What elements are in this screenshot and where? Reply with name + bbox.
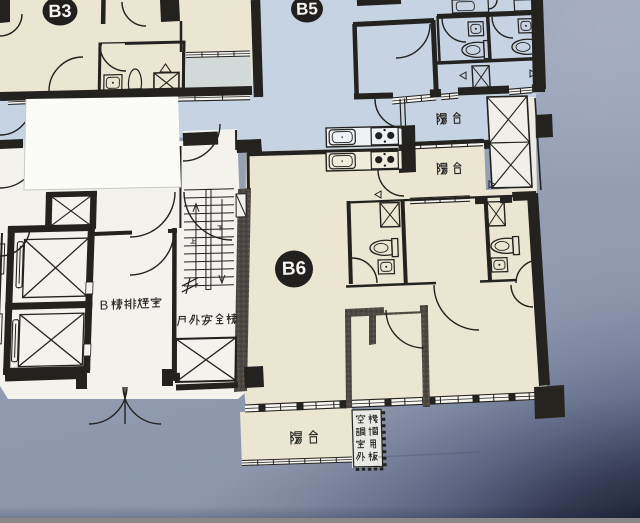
svg-text:B: B <box>99 297 108 312</box>
svg-text:B5: B5 <box>296 0 318 19</box>
svg-text:B3: B3 <box>48 1 72 22</box>
svg-text:B6: B6 <box>282 258 307 280</box>
